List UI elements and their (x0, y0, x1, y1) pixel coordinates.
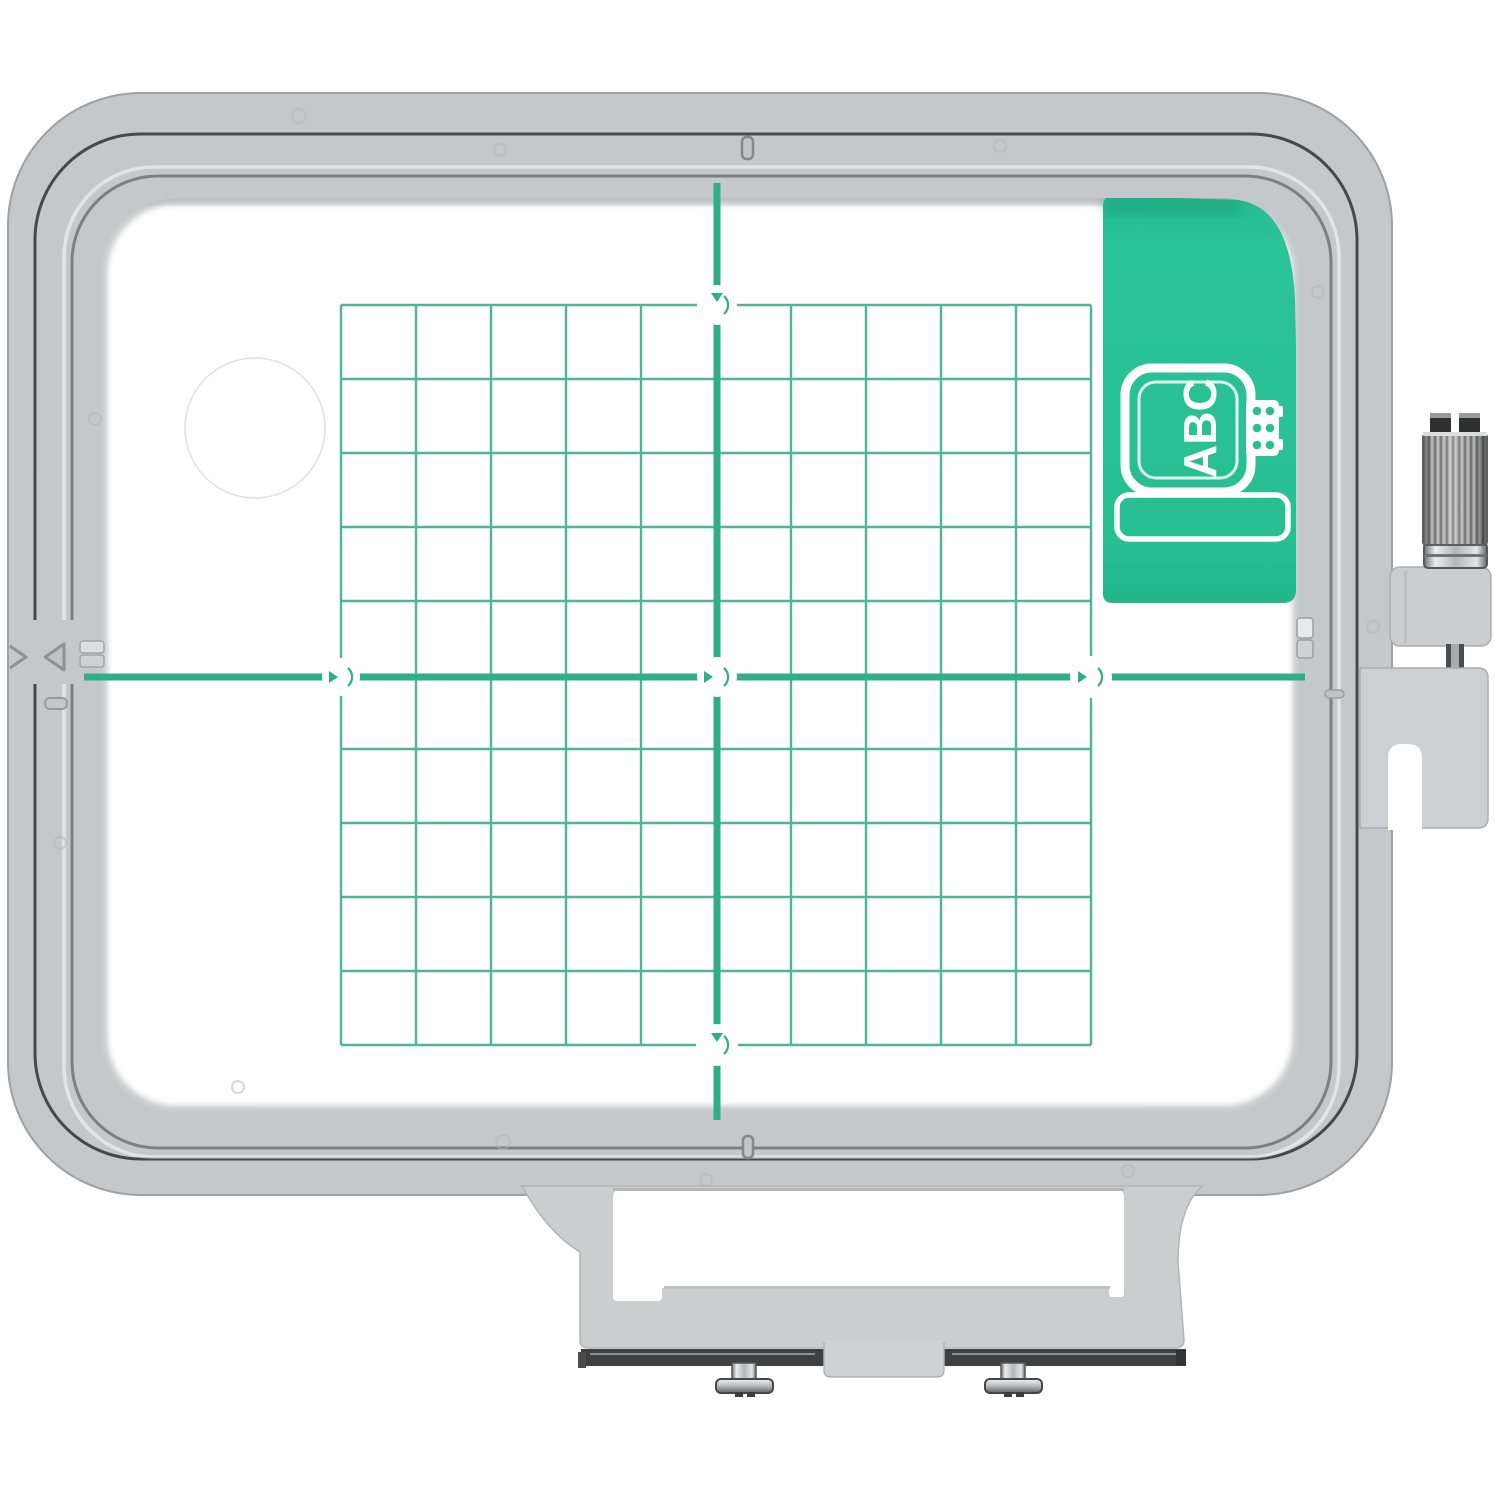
svg-text:ABC: ABC (1174, 378, 1226, 478)
